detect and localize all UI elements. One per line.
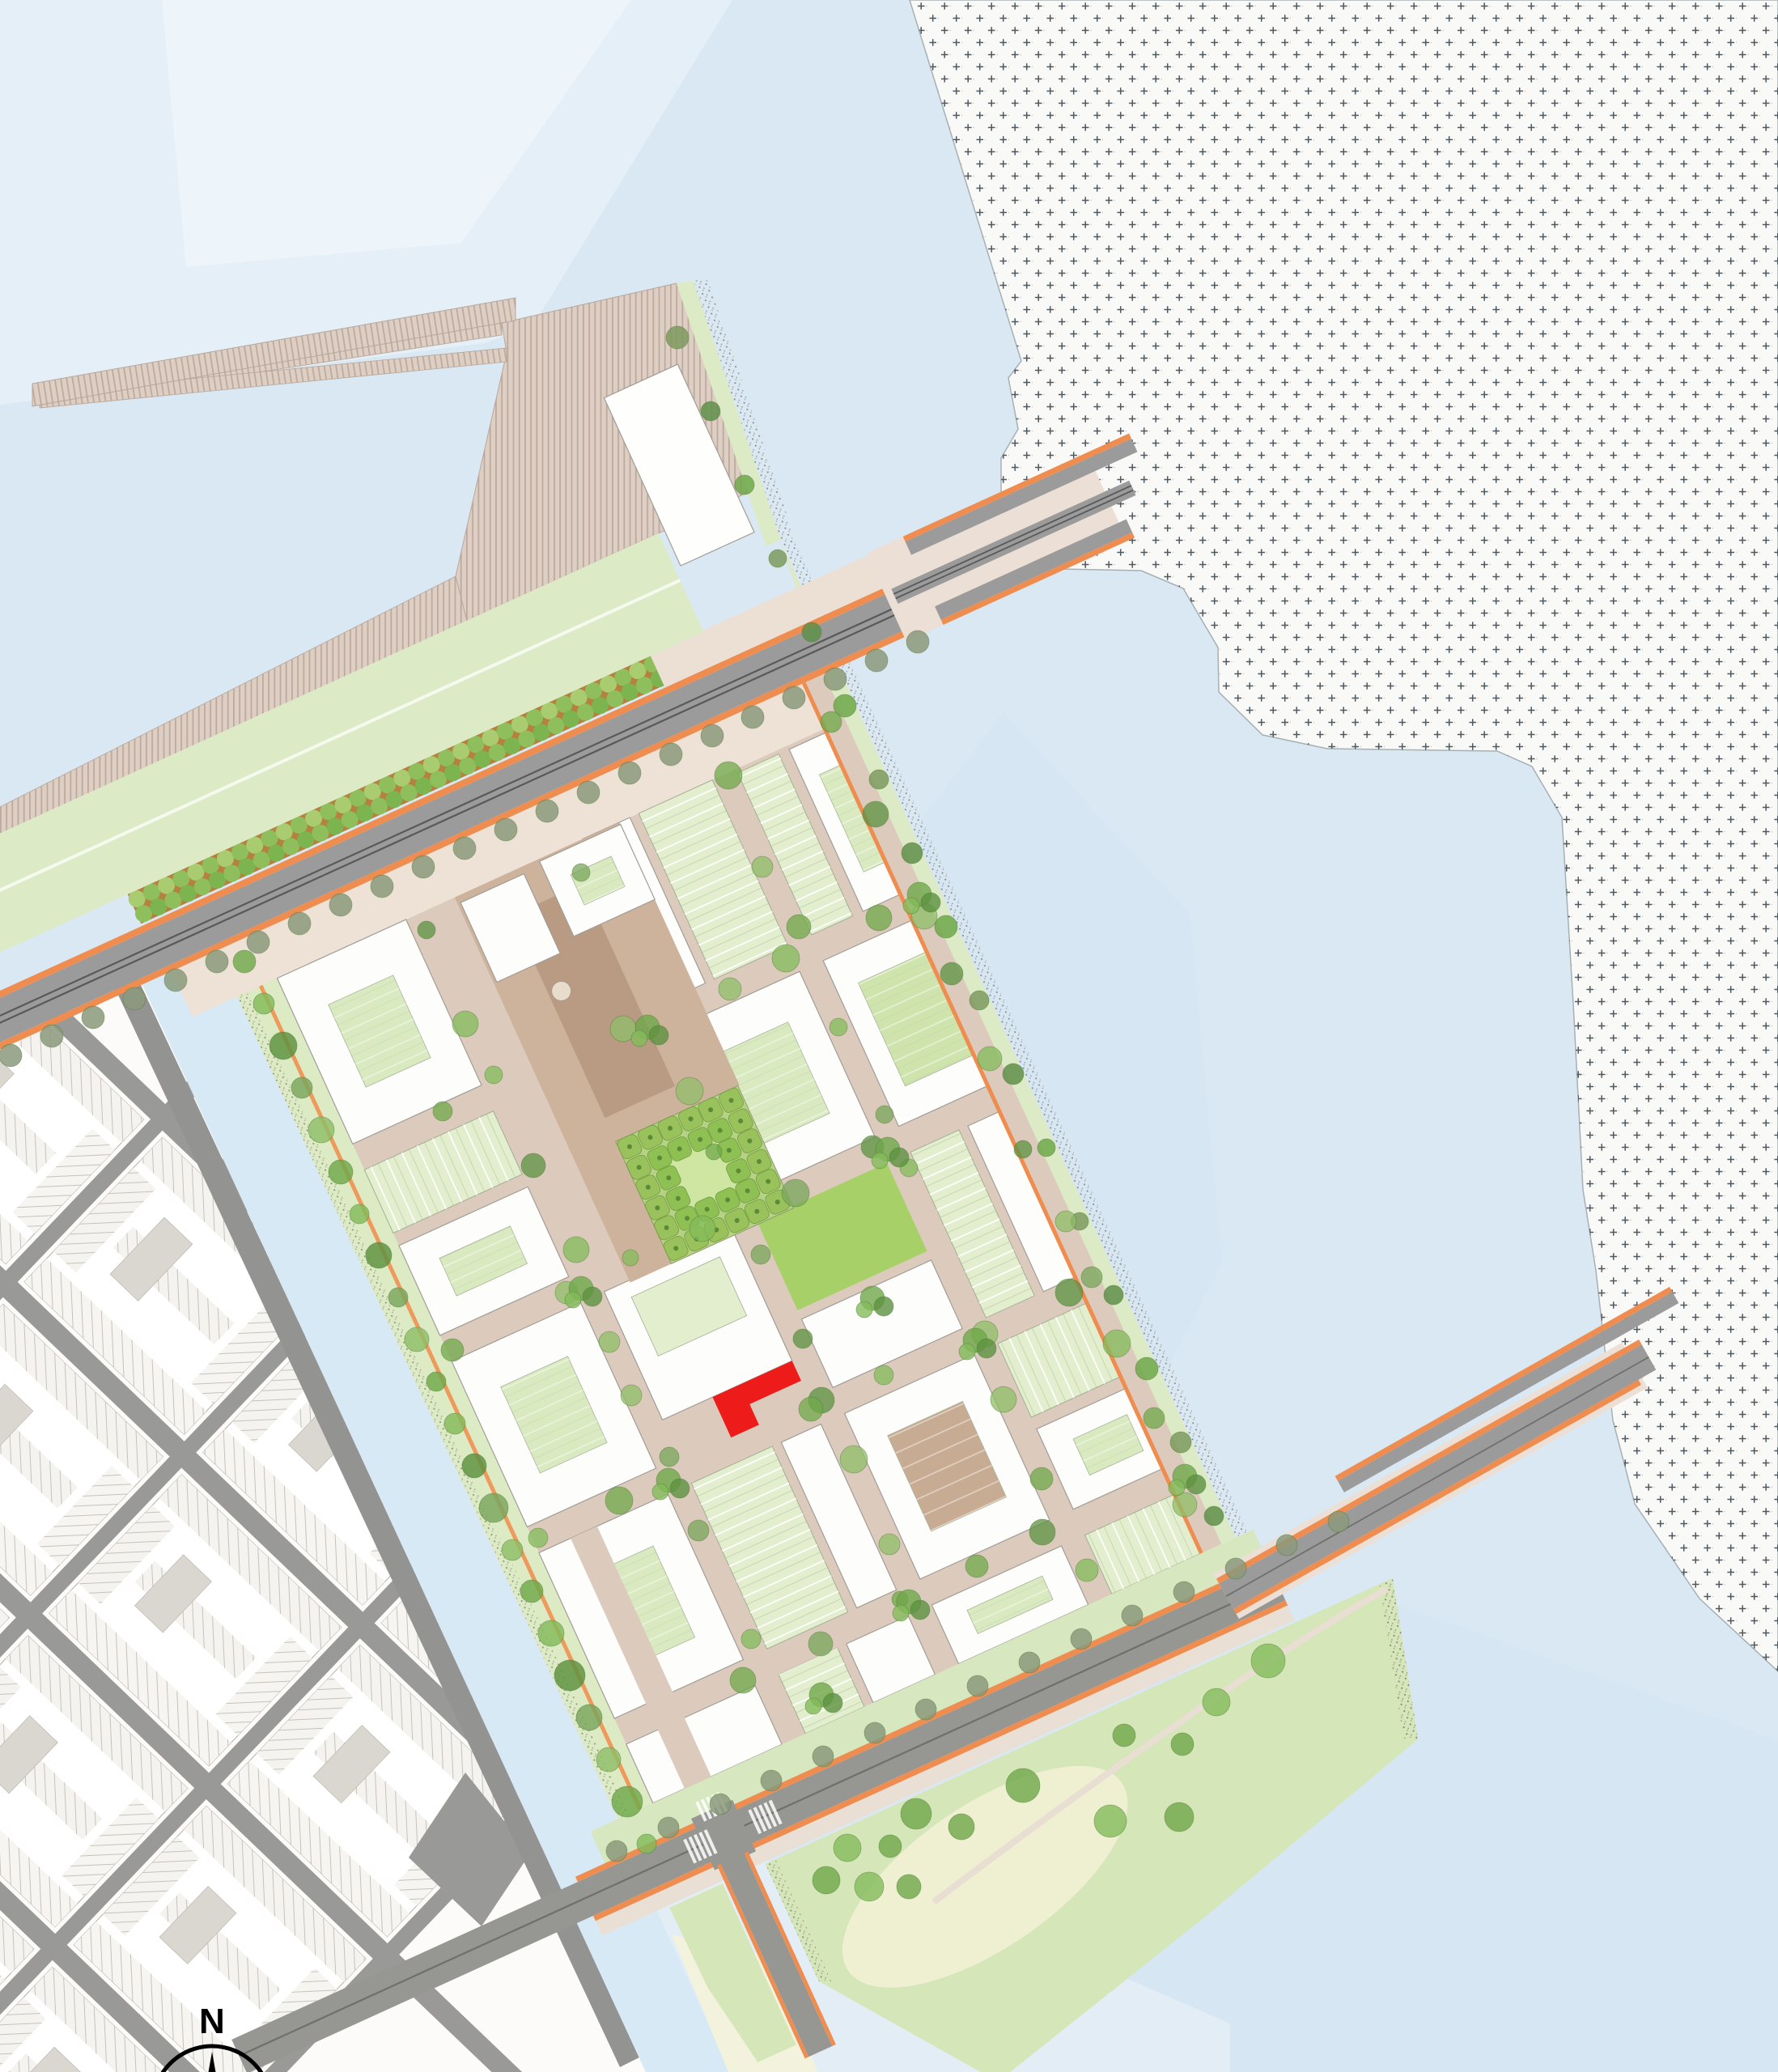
svg-text:N: N <box>199 2002 225 2041</box>
